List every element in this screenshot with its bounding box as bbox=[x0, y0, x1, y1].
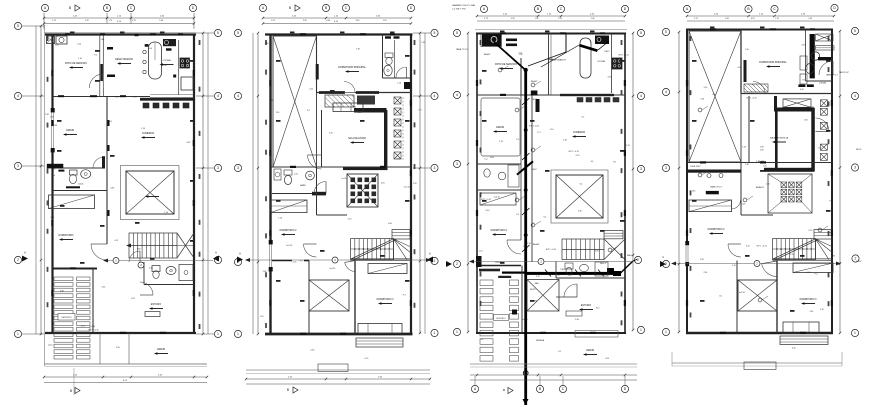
svg-text:5: 5 bbox=[640, 31, 642, 35]
svg-text:2.45: 2.45 bbox=[102, 287, 106, 289]
svg-text:2.28: 2.28 bbox=[303, 20, 307, 22]
svg-text:1.85: 1.85 bbox=[100, 39, 104, 41]
svg-text:V-1: V-1 bbox=[163, 100, 166, 102]
svg-text:1: 1 bbox=[237, 332, 239, 336]
svg-text:V-1: V-1 bbox=[558, 351, 561, 353]
svg-text:2.49: 2.49 bbox=[591, 18, 595, 20]
svg-text:0.31: 0.31 bbox=[751, 18, 755, 20]
svg-text:ESTUDIO: ESTUDIO bbox=[151, 304, 161, 306]
svg-text:BAJA 4": BAJA 4" bbox=[533, 243, 540, 246]
svg-text:P-1: P-1 bbox=[94, 55, 97, 57]
svg-text:0.90: 0.90 bbox=[186, 142, 190, 144]
svg-text:0.25: 0.25 bbox=[114, 240, 118, 242]
svg-text:1.85: 1.85 bbox=[265, 43, 269, 45]
svg-text:2.30: 2.30 bbox=[351, 178, 355, 180]
svg-text:0.25: 0.25 bbox=[293, 262, 297, 264]
svg-text:TUB 4": TUB 4" bbox=[560, 269, 566, 271]
svg-text:2.37: 2.37 bbox=[694, 18, 698, 20]
svg-text:1.10: 1.10 bbox=[703, 87, 707, 89]
svg-text:TUB 2": TUB 2" bbox=[531, 99, 537, 101]
svg-text:N.P.T. +0.15: N.P.T. +0.15 bbox=[88, 330, 98, 332]
svg-text:3.62: 3.62 bbox=[356, 20, 360, 22]
svg-text:TAMB. TP.1 8: TAMB. TP.1 8 bbox=[710, 186, 721, 189]
svg-text:1.20: 1.20 bbox=[763, 165, 767, 167]
svg-text:2.76: 2.76 bbox=[558, 18, 562, 20]
svg-text:2: 2 bbox=[637, 258, 639, 262]
svg-text:1.85: 1.85 bbox=[137, 248, 141, 250]
svg-text:C-2 TUB 2" PVC: C-2 TUB 2" PVC bbox=[452, 9, 467, 11]
svg-text:LAVAD.: LAVAD. bbox=[548, 58, 555, 61]
svg-text:1.85: 1.85 bbox=[519, 54, 523, 56]
svg-text:1.20: 1.20 bbox=[732, 265, 736, 267]
svg-text:1.47: 1.47 bbox=[775, 18, 779, 20]
svg-text:1.10: 1.10 bbox=[818, 147, 822, 149]
svg-text:0.25: 0.25 bbox=[81, 326, 85, 328]
svg-text:1.20: 1.20 bbox=[294, 174, 298, 176]
svg-text:38.8 F: 38.8 F bbox=[856, 149, 862, 151]
svg-text:DORMITORIO: DORMITORIO bbox=[59, 235, 74, 237]
svg-text:0.25: 0.25 bbox=[792, 347, 796, 349]
svg-text:4: 4 bbox=[640, 94, 642, 98]
svg-text:TAB 25,3 4": TAB 25,3 4" bbox=[839, 71, 849, 74]
svg-text:5: 5 bbox=[665, 30, 667, 34]
svg-text:V-1: V-1 bbox=[582, 117, 585, 119]
svg-text:0.25: 0.25 bbox=[576, 155, 580, 157]
svg-text:1.85: 1.85 bbox=[692, 191, 696, 193]
svg-text:1.20 AL PISO: 1.20 AL PISO bbox=[690, 165, 701, 168]
svg-text:2.30: 2.30 bbox=[50, 217, 54, 219]
svg-text:h=2.10: h=2.10 bbox=[739, 292, 745, 294]
svg-text:0.90: 0.90 bbox=[133, 96, 137, 98]
svg-text:0.25: 0.25 bbox=[810, 106, 814, 108]
svg-text:3: 3 bbox=[854, 166, 856, 170]
svg-text:3: 3 bbox=[17, 164, 19, 168]
svg-text:1.79: 1.79 bbox=[109, 20, 113, 22]
svg-text:2.45: 2.45 bbox=[578, 211, 582, 213]
svg-text:A: A bbox=[24, 251, 26, 255]
svg-text:1.85: 1.85 bbox=[804, 120, 808, 122]
svg-text:2.30: 2.30 bbox=[563, 139, 567, 141]
svg-text:1.20: 1.20 bbox=[278, 218, 282, 220]
svg-text:2.30: 2.30 bbox=[50, 116, 54, 118]
svg-text:2: 2 bbox=[456, 262, 458, 266]
svg-text:4: 4 bbox=[434, 94, 436, 98]
svg-text:3.15: 3.15 bbox=[626, 145, 630, 147]
svg-text:JARDIN: JARDIN bbox=[586, 349, 595, 352]
svg-text:1.85: 1.85 bbox=[163, 65, 167, 67]
svg-text:COMEDOR: COMEDOR bbox=[142, 133, 154, 135]
svg-text:B: B bbox=[69, 6, 71, 10]
svg-text:C-2: C-2 bbox=[516, 139, 519, 141]
svg-text:P-1: P-1 bbox=[403, 294, 406, 296]
svg-text:3.15: 3.15 bbox=[77, 44, 81, 46]
svg-text:0.90: 0.90 bbox=[490, 157, 494, 159]
svg-text:VEREDA: VEREDA bbox=[536, 339, 545, 342]
svg-text:5: 5 bbox=[237, 31, 239, 35]
svg-text:1.85: 1.85 bbox=[760, 150, 764, 152]
svg-text:HALL: HALL bbox=[535, 282, 540, 285]
svg-text:N.P.T. +0.15: N.P.T. +0.15 bbox=[746, 97, 756, 99]
svg-text:4: 4 bbox=[456, 93, 458, 97]
svg-text:0.25: 0.25 bbox=[809, 230, 813, 232]
svg-text:JARDIN: JARDIN bbox=[496, 126, 505, 129]
svg-text:h=2.10: h=2.10 bbox=[342, 178, 348, 180]
svg-text:5: 5 bbox=[217, 31, 219, 35]
svg-text:2.73: 2.73 bbox=[52, 20, 56, 22]
svg-text:2.30: 2.30 bbox=[700, 99, 704, 101]
svg-text:1: 1 bbox=[456, 330, 458, 334]
svg-text:1.85: 1.85 bbox=[760, 147, 764, 149]
svg-text:10mm: 10mm bbox=[78, 183, 84, 185]
svg-text:P-1: P-1 bbox=[300, 261, 303, 263]
svg-text:2.45: 2.45 bbox=[329, 133, 333, 135]
svg-text:B: B bbox=[289, 6, 291, 10]
svg-text:3.33: 3.33 bbox=[511, 18, 515, 20]
svg-text:1: 1 bbox=[434, 331, 436, 335]
svg-text:DORMITORIO 2: DORMITORIO 2 bbox=[280, 230, 298, 232]
svg-text:1.42: 1.42 bbox=[535, 18, 539, 20]
svg-text:P-1: P-1 bbox=[613, 162, 616, 164]
svg-text:3: 3 bbox=[456, 162, 458, 166]
svg-text:TUB 4": TUB 4" bbox=[531, 169, 537, 171]
svg-text:LLEGA 4: LLEGA 4 bbox=[819, 82, 826, 85]
svg-text:1.85: 1.85 bbox=[700, 259, 704, 261]
svg-text:0.90: 0.90 bbox=[148, 48, 152, 50]
svg-text:0.94: 0.94 bbox=[326, 20, 330, 22]
svg-text:TUB 2": TUB 2" bbox=[604, 51, 610, 53]
svg-text:2.30: 2.30 bbox=[45, 114, 49, 116]
svg-text:DORMITORIO PRINCIPAL: DORMITORIO PRINCIPAL bbox=[338, 66, 366, 69]
svg-text:2: 2 bbox=[17, 258, 19, 262]
svg-text:TAMB. TP.1 S: TAMB. TP.1 S bbox=[456, 48, 468, 51]
svg-text:1: 1 bbox=[217, 332, 219, 336]
svg-text:1: 1 bbox=[665, 330, 667, 334]
svg-text:5: 5 bbox=[854, 29, 856, 33]
svg-text:N.P.T. +0.15: N.P.T. +0.15 bbox=[529, 125, 539, 127]
svg-text:3: 3 bbox=[640, 167, 642, 171]
svg-text:1.20: 1.20 bbox=[141, 128, 145, 130]
svg-text:P-1: P-1 bbox=[538, 132, 541, 134]
svg-text:1: 1 bbox=[17, 332, 19, 336]
svg-text:0.90: 0.90 bbox=[831, 256, 835, 258]
svg-text:N.P.T. +0.15: N.P.T. +0.15 bbox=[546, 249, 556, 251]
svg-text:0.25: 0.25 bbox=[358, 112, 362, 114]
svg-text:0.25: 0.25 bbox=[309, 89, 313, 91]
svg-text:3.15: 3.15 bbox=[746, 246, 750, 248]
svg-text:0.25: 0.25 bbox=[605, 358, 609, 360]
svg-text:3.15: 3.15 bbox=[536, 276, 540, 278]
svg-text:1.10: 1.10 bbox=[78, 58, 82, 60]
svg-text:1.10: 1.10 bbox=[397, 83, 401, 85]
svg-text:1.20: 1.20 bbox=[499, 141, 503, 143]
svg-text:BAJA 2": BAJA 2" bbox=[484, 53, 491, 56]
svg-text:2.30: 2.30 bbox=[356, 49, 360, 51]
svg-text:4: 4 bbox=[237, 94, 239, 98]
svg-text:V-1: V-1 bbox=[109, 121, 112, 123]
svg-text:4: 4 bbox=[17, 94, 19, 98]
svg-text:h=2.10: h=2.10 bbox=[404, 186, 410, 188]
svg-text:V-1: V-1 bbox=[591, 161, 594, 163]
svg-text:h=2.10: h=2.10 bbox=[494, 196, 500, 198]
svg-text:0.25: 0.25 bbox=[365, 358, 369, 360]
svg-text:P-1: P-1 bbox=[802, 80, 805, 82]
svg-text:DEPOSITO: DEPOSITO bbox=[496, 318, 506, 320]
svg-text:1.49: 1.49 bbox=[808, 18, 812, 20]
svg-text:P-1: P-1 bbox=[752, 85, 755, 87]
svg-text:1.20: 1.20 bbox=[741, 203, 745, 205]
svg-text:h=2.10: h=2.10 bbox=[89, 326, 95, 328]
svg-text:C-2: C-2 bbox=[516, 214, 519, 216]
svg-text:4: 4 bbox=[665, 90, 667, 94]
svg-text:P-1: P-1 bbox=[419, 110, 422, 112]
svg-text:A: A bbox=[429, 252, 431, 256]
svg-text:1: 1 bbox=[640, 328, 642, 332]
svg-text:V-1: V-1 bbox=[544, 217, 547, 219]
svg-text:BAJAR N°: BAJAR N° bbox=[756, 186, 765, 189]
svg-text:1.10: 1.10 bbox=[260, 316, 264, 318]
svg-text:DESAYUNADOR: DESAYUNADOR bbox=[115, 58, 133, 61]
svg-text:0.90: 0.90 bbox=[60, 290, 64, 292]
svg-text:0.81: 0.81 bbox=[725, 18, 729, 20]
svg-text:h=2.10: h=2.10 bbox=[329, 268, 335, 270]
svg-text:V-1: V-1 bbox=[480, 339, 483, 341]
svg-text:P-1: P-1 bbox=[829, 201, 832, 203]
svg-text:1.10: 1.10 bbox=[115, 96, 119, 98]
svg-text:V-1: V-1 bbox=[580, 183, 583, 185]
svg-text:2.30: 2.30 bbox=[269, 100, 273, 102]
svg-text:1.20: 1.20 bbox=[276, 112, 280, 114]
svg-text:h=2.10: h=2.10 bbox=[808, 168, 814, 170]
svg-text:0.90: 0.90 bbox=[388, 223, 392, 225]
svg-text:2.45: 2.45 bbox=[353, 107, 357, 109]
svg-text:P-1: P-1 bbox=[307, 110, 310, 112]
svg-text:COCINA: COCINA bbox=[597, 60, 605, 63]
svg-text:BAÑO: BAÑO bbox=[300, 184, 306, 187]
svg-text:2.30: 2.30 bbox=[575, 319, 579, 321]
svg-text:h=2.10: h=2.10 bbox=[525, 243, 531, 245]
svg-text:0.90: 0.90 bbox=[738, 67, 742, 69]
svg-text:1.10: 1.10 bbox=[820, 309, 824, 311]
svg-text:JARDIN: JARDIN bbox=[66, 129, 75, 132]
svg-text:3: 3 bbox=[237, 166, 239, 170]
svg-text:COCINA: COCINA bbox=[162, 59, 171, 62]
svg-text:0.90: 0.90 bbox=[396, 159, 400, 161]
svg-text:3.15: 3.15 bbox=[790, 254, 794, 256]
svg-text:DORMITORIO PRINCIPAL: DORMITORIO PRINCIPAL bbox=[759, 61, 787, 64]
svg-text:2.30: 2.30 bbox=[703, 272, 707, 274]
svg-text:2: 2 bbox=[434, 259, 436, 263]
svg-text:N.P.T. +0.15: N.P.T. +0.15 bbox=[618, 55, 628, 57]
svg-text:0.90: 0.90 bbox=[807, 272, 811, 274]
svg-text:3: 3 bbox=[434, 166, 436, 170]
svg-text:2.45: 2.45 bbox=[568, 275, 572, 277]
svg-text:3: 3 bbox=[665, 166, 667, 170]
svg-text:1: 1 bbox=[854, 331, 856, 335]
svg-text:3: 3 bbox=[217, 166, 219, 170]
svg-text:1.20: 1.20 bbox=[413, 183, 417, 185]
svg-text:3.73: 3.73 bbox=[484, 18, 488, 20]
svg-text:LAVADERO 18x37 Y 4BA: LAVADERO 18x37 Y 4BA bbox=[452, 4, 475, 7]
svg-text:DEPOSITO: DEPOSITO bbox=[62, 317, 72, 319]
svg-text:3.15: 3.15 bbox=[607, 76, 611, 78]
svg-text:5: 5 bbox=[17, 24, 19, 28]
svg-text:4: 4 bbox=[217, 94, 219, 98]
svg-text:5: 5 bbox=[456, 31, 458, 35]
svg-text:2.30: 2.30 bbox=[311, 350, 315, 352]
svg-text:DORMITORIO 2: DORMITORIO 2 bbox=[708, 229, 726, 231]
svg-text:COMEDOR: COMEDOR bbox=[573, 132, 585, 134]
svg-text:ESTUDIO: ESTUDIO bbox=[581, 305, 591, 307]
svg-text:V-1: V-1 bbox=[712, 94, 715, 96]
svg-text:2.30: 2.30 bbox=[745, 164, 749, 166]
svg-text:0.90: 0.90 bbox=[53, 125, 57, 127]
svg-text:A: A bbox=[239, 252, 241, 256]
svg-text:PATIO DE SERVICIO: PATIO DE SERVICIO bbox=[65, 62, 87, 65]
svg-text:h=2.10: h=2.10 bbox=[286, 245, 292, 247]
svg-text:3.15: 3.15 bbox=[132, 20, 136, 22]
svg-text:DORMITORIO 1: DORMITORIO 1 bbox=[491, 230, 509, 232]
svg-text:REG 4": REG 4" bbox=[600, 263, 607, 265]
svg-text:1.10: 1.10 bbox=[51, 175, 55, 177]
svg-text:1.10: 1.10 bbox=[348, 219, 352, 221]
svg-text:MONT.: MONT. bbox=[530, 289, 536, 291]
svg-text:B: B bbox=[70, 389, 72, 393]
svg-text:1.20 4": 1.20 4" bbox=[856, 261, 862, 263]
svg-text:1.20: 1.20 bbox=[479, 250, 483, 252]
svg-text:3.15: 3.15 bbox=[55, 44, 59, 46]
svg-text:2.45: 2.45 bbox=[52, 169, 56, 171]
svg-text:2.30: 2.30 bbox=[809, 311, 813, 313]
svg-text:PATIO DE SERVICIO: PATIO DE SERVICIO bbox=[495, 63, 517, 66]
svg-text:2.30: 2.30 bbox=[766, 183, 770, 185]
svg-text:0.90: 0.90 bbox=[595, 250, 599, 252]
svg-text:2.59: 2.59 bbox=[271, 20, 275, 22]
svg-text:1.10: 1.10 bbox=[550, 129, 554, 131]
svg-text:LLEGA 2": LLEGA 2" bbox=[495, 261, 504, 264]
svg-text:B: B bbox=[287, 388, 289, 392]
svg-text:SALA DE MUSICA: SALA DE MUSICA bbox=[770, 137, 789, 140]
svg-text:DORMITORIO 3: DORMITORIO 3 bbox=[800, 299, 818, 301]
svg-text:0.25: 0.25 bbox=[381, 183, 385, 185]
svg-text:2.30: 2.30 bbox=[149, 267, 153, 269]
svg-text:SALE 4": SALE 4" bbox=[627, 254, 634, 257]
svg-text:N.P.T. +0.15: N.P.T. +0.15 bbox=[757, 245, 767, 247]
svg-text:5: 5 bbox=[434, 31, 436, 35]
svg-text:2.46: 2.46 bbox=[159, 20, 163, 22]
svg-text:2.31: 2.31 bbox=[85, 20, 89, 22]
svg-text:2.30: 2.30 bbox=[116, 347, 120, 349]
svg-text:4: 4 bbox=[854, 94, 856, 98]
svg-text:JARDIN: JARDIN bbox=[157, 348, 166, 351]
svg-text:A: A bbox=[215, 251, 217, 255]
svg-text:0.90: 0.90 bbox=[802, 44, 806, 46]
svg-text:1.20: 1.20 bbox=[742, 146, 746, 148]
svg-text:SALA DE ESTAR: SALA DE ESTAR bbox=[348, 137, 366, 140]
svg-text:1.20: 1.20 bbox=[745, 49, 749, 51]
svg-text:0.90: 0.90 bbox=[800, 89, 804, 91]
svg-text:0.90: 0.90 bbox=[110, 188, 114, 190]
svg-text:3.15: 3.15 bbox=[596, 308, 600, 310]
svg-text:TAMPA TP.1 4: TAMPA TP.1 4 bbox=[826, 74, 837, 77]
svg-text:DORMITORIO 3: DORMITORIO 3 bbox=[377, 299, 395, 301]
svg-text:0.90: 0.90 bbox=[486, 210, 490, 212]
svg-text:N.P.T. +0.15: N.P.T. +0.15 bbox=[569, 151, 579, 153]
svg-text:3.15: 3.15 bbox=[597, 96, 601, 98]
svg-text:BAJA 2": BAJA 2" bbox=[531, 80, 538, 83]
svg-text:P-1: P-1 bbox=[523, 246, 526, 248]
svg-text:0.25: 0.25 bbox=[131, 298, 135, 300]
svg-text:h=2.10: h=2.10 bbox=[522, 319, 528, 321]
svg-text:P-1: P-1 bbox=[815, 273, 818, 275]
svg-text:1.85: 1.85 bbox=[421, 42, 425, 44]
svg-text:3.15: 3.15 bbox=[556, 274, 560, 276]
svg-text:V-1: V-1 bbox=[719, 296, 722, 298]
svg-text:B: B bbox=[503, 388, 505, 392]
svg-text:1.10: 1.10 bbox=[164, 212, 168, 214]
svg-text:2.30: 2.30 bbox=[774, 171, 778, 173]
svg-text:2.53: 2.53 bbox=[383, 20, 387, 22]
